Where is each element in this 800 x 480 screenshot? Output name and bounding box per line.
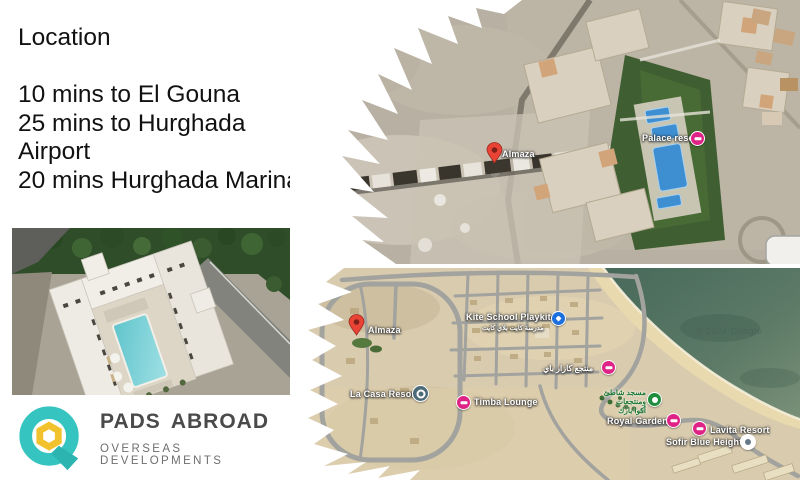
logo-name: PADS ABROAD xyxy=(100,410,286,434)
logo-tagline: OVERSEAS DEVELOPMENTS xyxy=(100,443,286,467)
location-line-3: 20 mins Hurghada Marina xyxy=(18,167,300,196)
map-label-sofir-blue-heights: Sofir Blue Heights xyxy=(666,437,748,447)
area-map-art xyxy=(300,268,800,480)
map-label-almaza: Almaza xyxy=(502,149,535,159)
poi-icon-lavita-resort xyxy=(692,421,707,436)
property-render-art xyxy=(12,228,290,395)
poi-icon-green-place xyxy=(647,392,662,407)
map-label-timba-lounge: Timba Lounge xyxy=(474,397,538,407)
map-label-kite-school-arabic: مدرسة كايت بلاي كايت xyxy=(482,324,544,332)
poi-icon-sofir-blue-heights xyxy=(740,434,756,450)
map-label-lavita-resort: Lavita Resort xyxy=(710,425,770,435)
poi-icon-timba-lounge xyxy=(456,395,471,410)
map-watermark: © 2024 Google xyxy=(696,326,762,336)
poi-icon-royal-gardens xyxy=(666,413,681,428)
location-line-1: 10 mins to El Gouna xyxy=(18,81,300,110)
satellite-map-closeup: Almaza Palace resort xyxy=(290,0,800,264)
brochure-slide: Location 10 mins to El Gouna 25 mins to … xyxy=(0,0,800,480)
map-label-almaza: Almaza xyxy=(368,325,401,335)
red-pin-icon xyxy=(348,314,365,341)
logo-text: PADS ABROAD OVERSEAS DEVELOPMENTS xyxy=(100,410,286,467)
map-label-bay-arabic: منتجع كازار باي xyxy=(543,364,593,373)
satellite-map-area: Almaza Kite School Playkite مدرسة كايت ب… xyxy=(300,268,800,480)
pads-abroad-logo: PADS ABROAD OVERSEAS DEVELOPMENTS xyxy=(16,400,286,476)
logo-q-icon xyxy=(16,403,86,473)
location-title: Location xyxy=(18,24,300,52)
map-label-green-arabic-2: ومنتجعات xyxy=(610,397,646,406)
poi-icon-kite-school xyxy=(551,311,566,326)
location-text-block: Location 10 mins to El Gouna 25 mins to … xyxy=(18,24,300,195)
red-pin-icon xyxy=(486,142,503,169)
location-line-2: 25 mins to Hurghada Airport xyxy=(18,110,300,167)
map-label-la-casa-resort: La Casa Resort xyxy=(350,389,418,399)
map-label-kite-school: Kite School Playkite xyxy=(466,312,556,322)
map-label-royal-gardens: Royal Gardens xyxy=(607,416,673,426)
satellite-map-art xyxy=(290,0,800,264)
poi-icon-bay-resort xyxy=(601,360,616,375)
poi-icon-la-casa-resort xyxy=(412,385,429,402)
poi-icon-palace-resort xyxy=(690,131,705,146)
map-label-green-arabic-3: أكوا بارك xyxy=(612,406,646,415)
property-aerial-render xyxy=(12,228,290,395)
map-label-green-arabic-1: مسجد شاطئ xyxy=(606,388,646,397)
